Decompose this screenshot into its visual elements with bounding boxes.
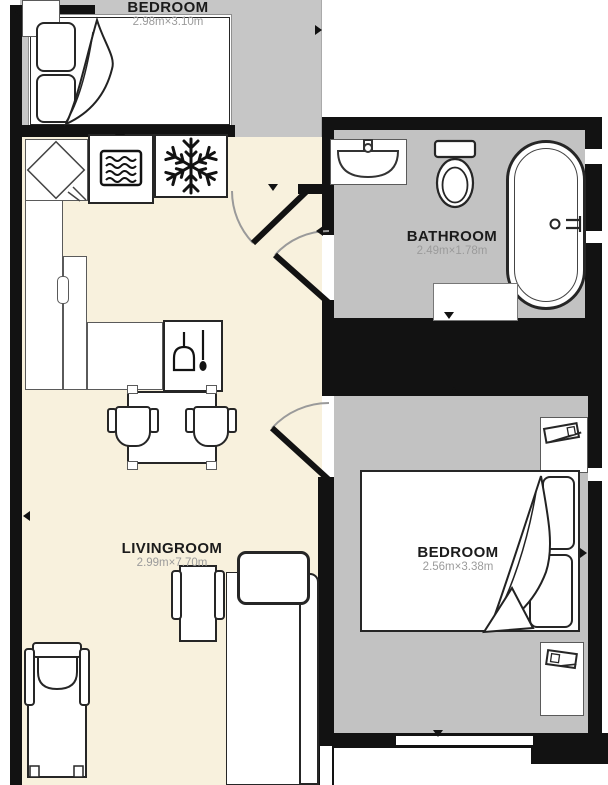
counter-handle: [57, 276, 69, 304]
sofa-armrest: [237, 551, 310, 605]
freezer-appliance: [154, 134, 228, 198]
wash-basin: [330, 139, 407, 185]
direction-marker: [444, 312, 454, 319]
pillow: [542, 476, 575, 550]
direction-marker: [15, 7, 22, 17]
bathroom-top-wall: [322, 117, 596, 130]
direction-marker: [316, 226, 323, 236]
chair-arm: [107, 408, 117, 433]
pillow: [36, 22, 76, 72]
direction-marker: [268, 184, 278, 191]
bathroom-right-wall: [585, 117, 602, 318]
corner-kitchen-unit: [25, 139, 88, 201]
armchair: [179, 565, 217, 642]
pillow: [36, 74, 76, 123]
bathroom-bedroom-wall-mass: [322, 318, 596, 396]
bedroom-right-bottom-wall-b: [531, 733, 608, 764]
floor-plan: BEDROOM 2.98m×3.10m BATHROOM 2.49m×1.78m…: [0, 0, 608, 785]
table-leg: [206, 461, 217, 470]
outer-wall-left: [10, 5, 22, 785]
bedroom-right-window-south: [396, 733, 533, 748]
armchair-arm: [214, 570, 225, 620]
pillow: [529, 554, 573, 628]
bathroom-window: [585, 149, 602, 164]
bathtub-inner: [514, 148, 578, 302]
chaise-backrest: [32, 642, 82, 658]
chair-arm: [227, 408, 237, 433]
hall-door-stub-wall: [298, 184, 324, 194]
chaise-arm: [24, 648, 35, 706]
direction-marker: [580, 548, 587, 558]
bedroom-right-right-wall: [588, 317, 602, 760]
nightstand: [540, 642, 584, 716]
dishwasher: [163, 320, 223, 392]
dining-chair-right: [193, 406, 229, 447]
direction-marker: [115, 128, 125, 135]
kitchen-counter-mid: [87, 322, 163, 390]
table-leg: [127, 385, 138, 394]
table-leg: [206, 385, 217, 394]
direction-marker: [315, 25, 322, 35]
bedroom-right-window-east: [588, 468, 602, 481]
armchair-arm: [171, 570, 182, 620]
bedroom-right-window-west: [320, 746, 332, 785]
chair-arm: [185, 408, 195, 433]
desk: [540, 417, 588, 473]
chair-arm: [149, 408, 159, 433]
dining-chair-left: [115, 406, 151, 447]
direction-marker: [23, 511, 30, 521]
chaise-arm: [79, 648, 90, 706]
bathroom-window-2: [585, 231, 602, 243]
oven-appliance: [88, 134, 154, 204]
table-leg: [127, 461, 138, 470]
chaise-lounge: [27, 650, 87, 778]
direction-marker: [433, 730, 443, 737]
direction-marker: [449, 387, 459, 394]
